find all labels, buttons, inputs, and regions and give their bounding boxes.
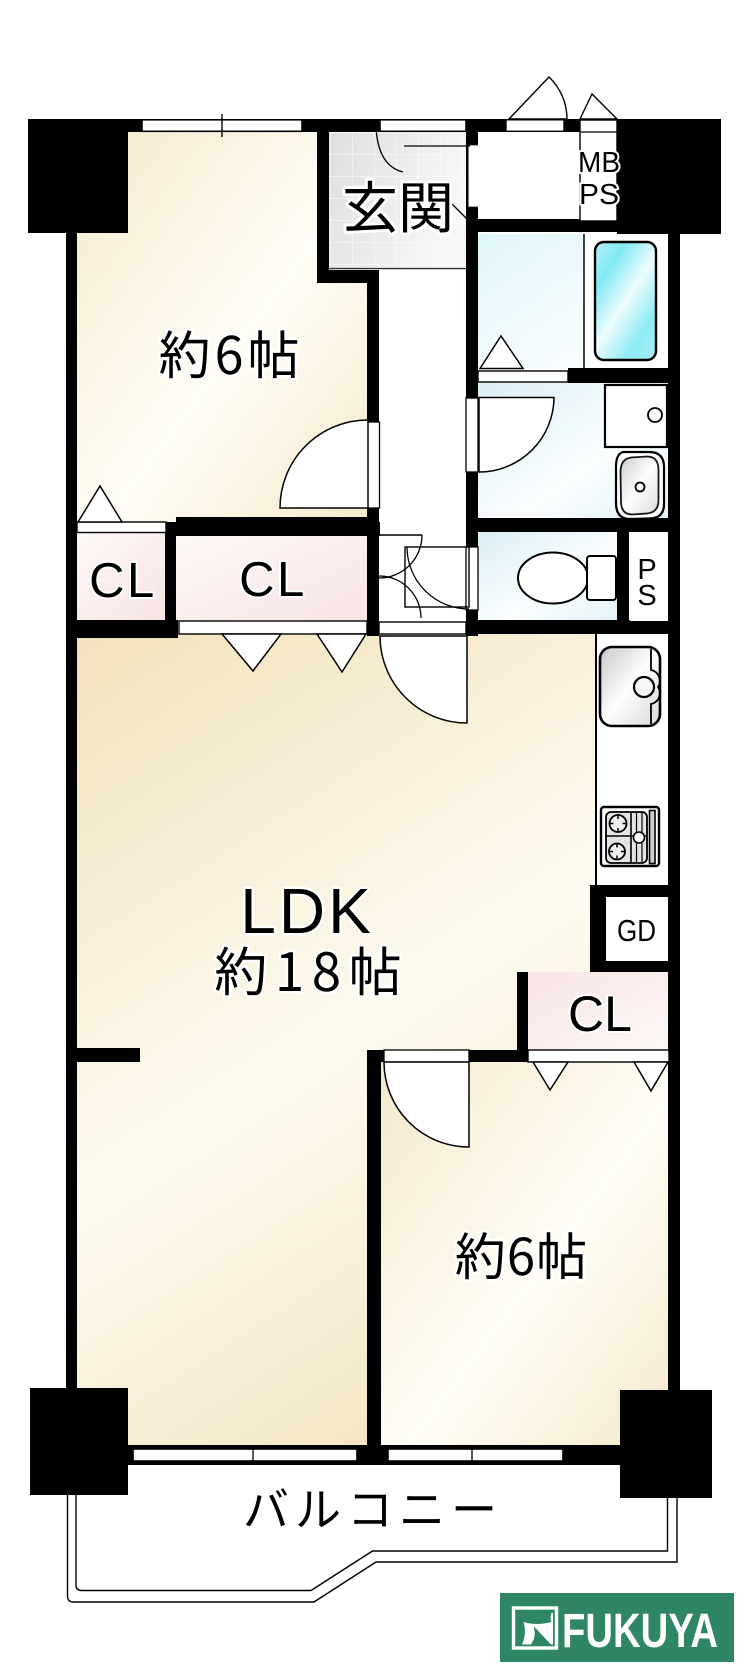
svg-text:CL: CL	[89, 554, 157, 608]
svg-text:MB: MB	[578, 147, 620, 179]
svg-text:CL: CL	[568, 986, 632, 1042]
svg-text:LDK: LDK	[240, 875, 374, 947]
svg-text:FUKUYA: FUKUYA	[562, 1605, 718, 1658]
svg-text:GD: GD	[617, 913, 656, 948]
svg-text:S: S	[637, 580, 656, 612]
svg-text:PS: PS	[579, 179, 619, 211]
svg-text:CL: CL	[239, 553, 307, 607]
